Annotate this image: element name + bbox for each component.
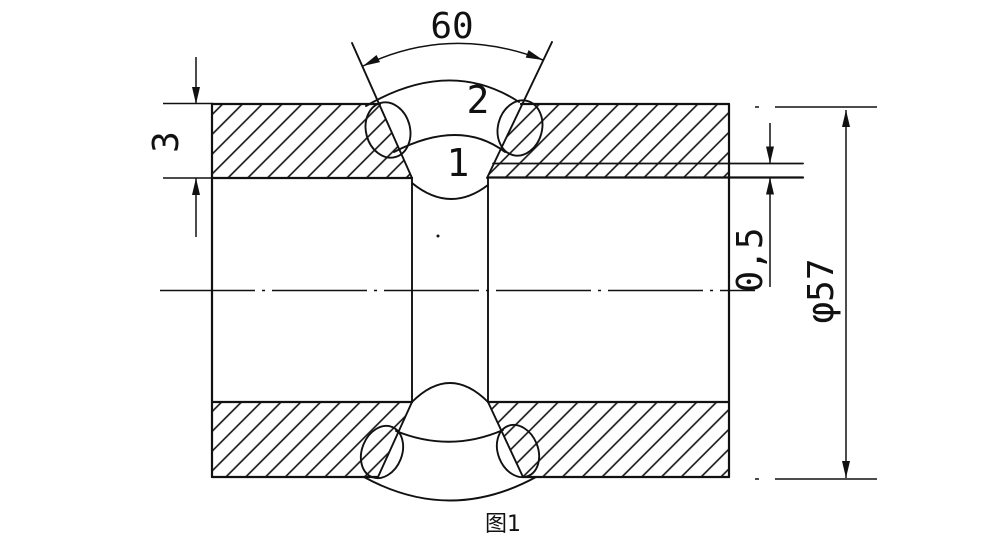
top-weld <box>352 42 552 402</box>
dimension-wall-thickness: 3 <box>146 57 213 237</box>
pipe-diameter-label: φ57 <box>801 258 842 323</box>
root-bead-arc <box>412 383 488 402</box>
weld-joint-drawing: 60 3 0,5 φ57 2 1 图1 <box>0 0 1005 540</box>
wall-thickness-label: 3 <box>146 131 187 153</box>
root-pass-label: 1 <box>447 141 470 185</box>
figure-page: 60 3 0,5 φ57 2 1 图1 <box>0 0 1005 540</box>
dimension-groove-angle: 60 <box>361 6 544 70</box>
figure-caption: 图1 <box>485 512 521 537</box>
weld-pass-labels: 2 1 <box>447 78 490 185</box>
pass-boundary-arc <box>396 430 503 442</box>
dimension-root-height: 0,5 <box>730 123 774 293</box>
stray-mark <box>437 235 440 238</box>
root-bead-arc <box>412 183 488 199</box>
groove-angle-label: 60 <box>430 6 473 47</box>
root-height-label: 0,5 <box>730 227 771 292</box>
cap-bead-arc <box>364 477 536 501</box>
cover-pass-label: 2 <box>467 78 490 122</box>
